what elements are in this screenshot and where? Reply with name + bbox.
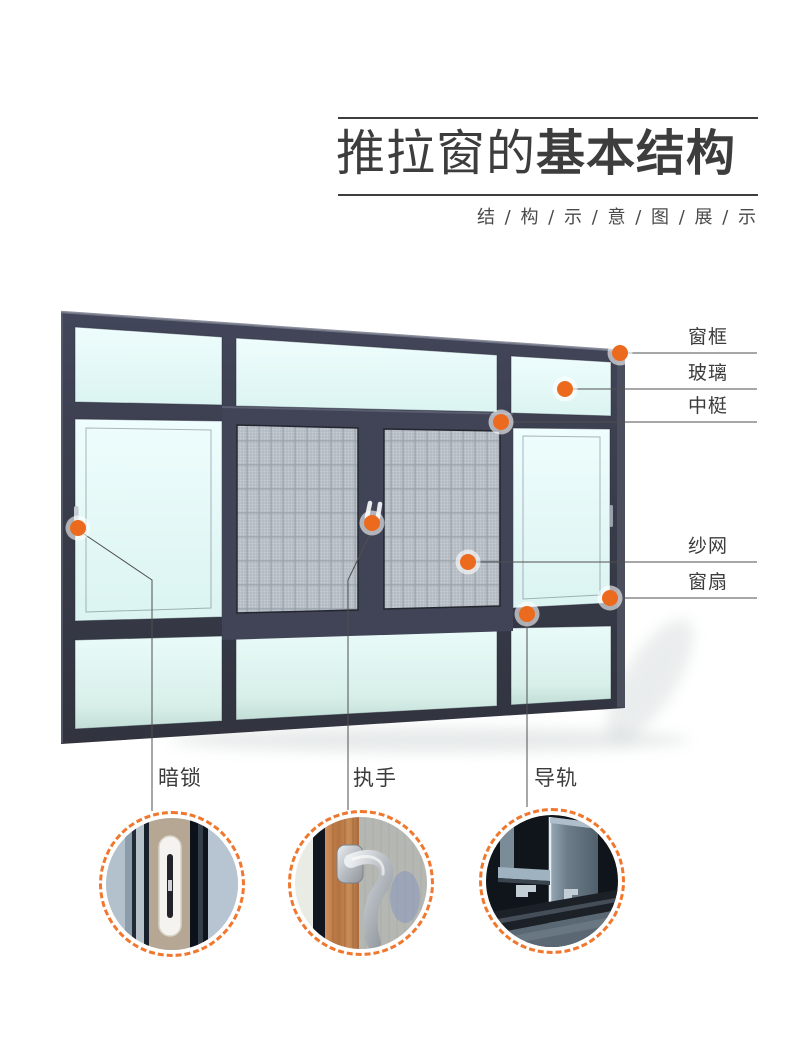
mesh-panel-right (384, 429, 500, 609)
callout-label-screen: 纱网 (688, 535, 728, 557)
marker-dot-glass (553, 377, 578, 402)
callout-label-frame: 窗框 (688, 326, 728, 348)
callout-label-lock: 暗锁 (158, 765, 202, 791)
glass-pane (75, 327, 222, 405)
detail-photo-rail (479, 808, 625, 954)
marker-dot-mullion (489, 410, 514, 435)
marker-dot-sash (598, 586, 623, 611)
handle-photo-art (295, 817, 427, 949)
glass-pane-sash-right (513, 428, 610, 608)
detail-photo-lock (99, 811, 245, 957)
glass-pane (75, 636, 222, 729)
callout-label-glass: 玻璃 (688, 362, 728, 384)
callout-label-sash: 窗扇 (688, 571, 728, 593)
marker-dot-frame (608, 341, 633, 366)
glass-pane (236, 629, 497, 720)
mesh-panel-left (237, 425, 358, 613)
lock-photo-art (106, 818, 238, 950)
right-lock-handle (610, 505, 614, 527)
detail-photo-handle (288, 810, 434, 956)
callout-label-rail: 导轨 (534, 765, 578, 791)
glass-pane (511, 626, 611, 705)
callout-label-mullion: 中梃 (688, 395, 728, 417)
marker-dot-rail (515, 602, 540, 627)
marker-dot-lock (66, 516, 91, 541)
glass-pane-sash-left (75, 419, 222, 621)
marker-dot-screen (456, 550, 481, 575)
callout-label-handle: 执手 (353, 765, 397, 791)
marker-dot-handle (360, 511, 385, 536)
poster-page: 推拉窗的基本结构 结 / 构 / 示 / 意 / 图 / 展 / 示 (0, 0, 790, 1055)
rail-photo-art (486, 815, 618, 947)
